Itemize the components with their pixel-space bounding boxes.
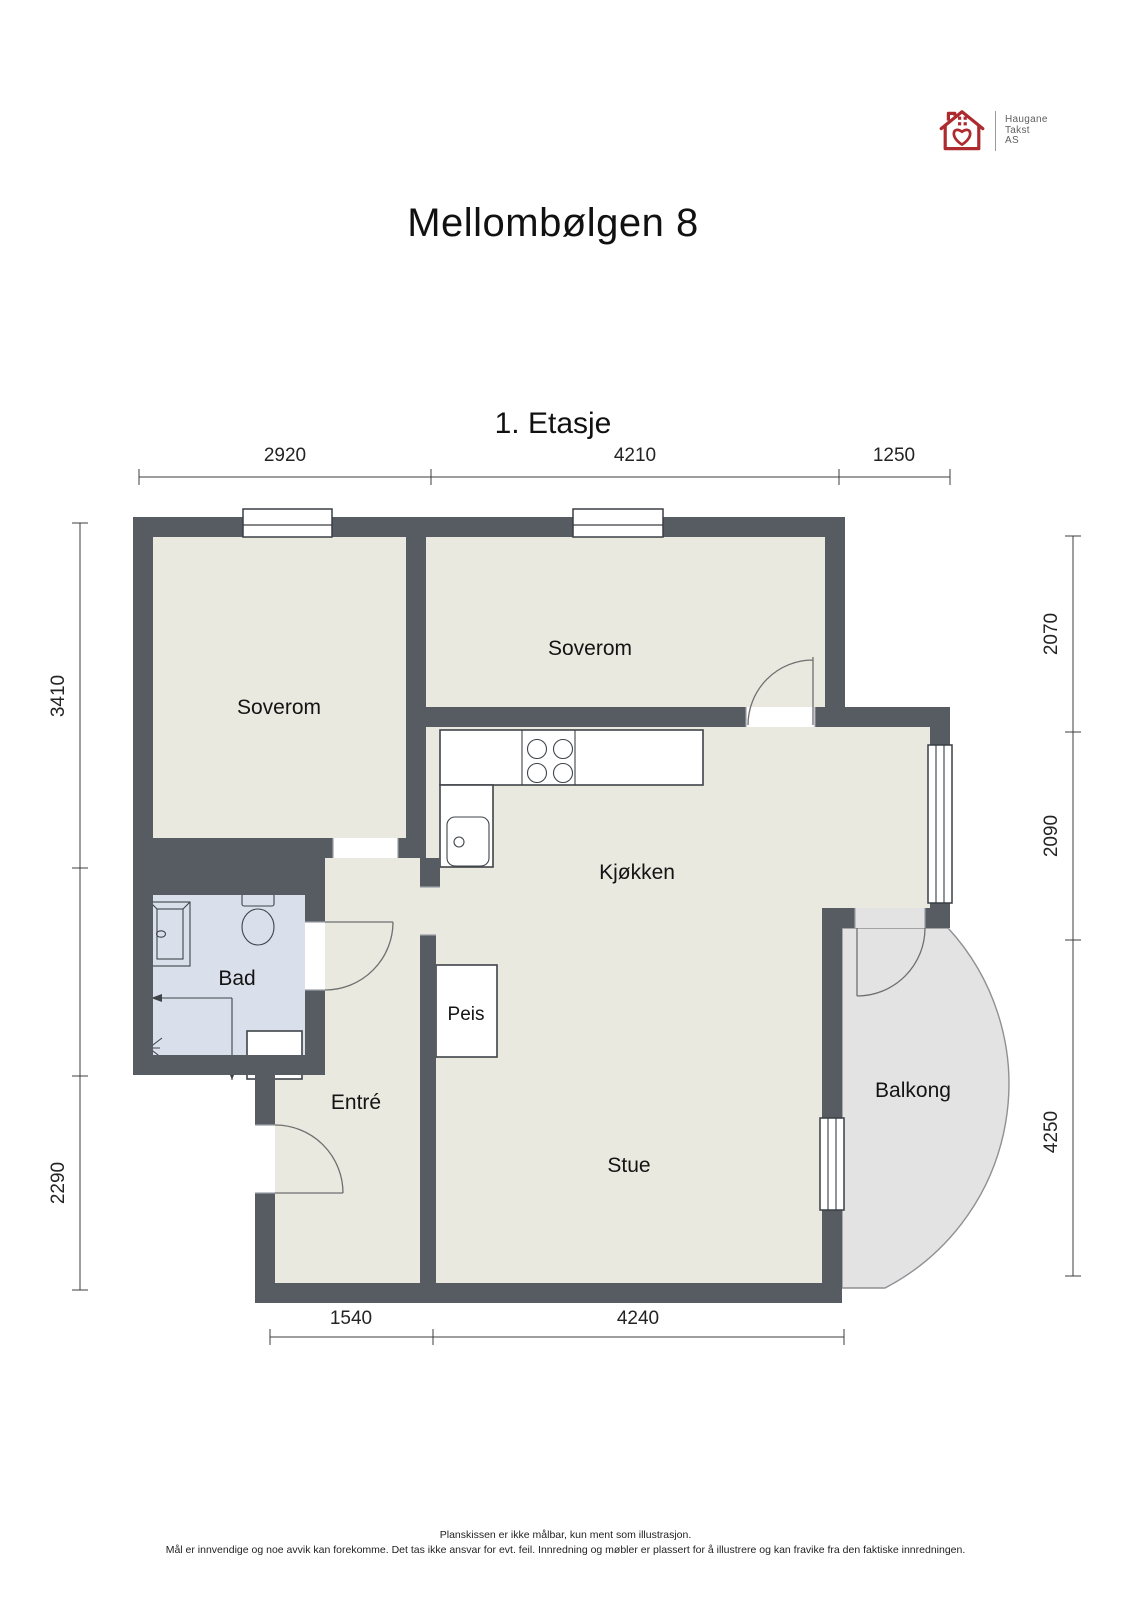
dim-bottom: 1540 4240 (270, 1308, 844, 1345)
dim-top-1: 2920 (264, 445, 306, 466)
window-soverom-top (573, 509, 663, 537)
floorplan-page: Haugane Takst AS Mellombølgen 8 1. Etasj… (0, 0, 1131, 1600)
dim-bottom-2: 4240 (617, 1308, 659, 1329)
dim-top-2: 4210 (614, 445, 656, 466)
disclaimer-line-2: Mål er innvendige og noe avvik kan forek… (0, 1543, 1131, 1558)
dim-right-2: 2090 (1041, 815, 1062, 857)
wall-extension-right-a (930, 707, 950, 745)
wall-bath-bottom (133, 1055, 325, 1075)
wall-hall-kitchen (420, 858, 440, 887)
disclaimer-footer: Planskissen er ikke målbar, kun ment som… (0, 1528, 1131, 1558)
floor-plan-drawing: Soverom Soverom Kjøkken Bad Entré Peis S… (0, 0, 1131, 1600)
label-balkong: Balkong (875, 1079, 951, 1102)
wall-kitchen-top-a (426, 707, 746, 727)
wall-stue-right-a (822, 908, 842, 1118)
label-stue: Stue (607, 1154, 650, 1177)
wall-top (133, 517, 845, 537)
wall-bed1-bottom-b (398, 838, 426, 858)
label-entre: Entré (331, 1091, 381, 1114)
window-kitchen-east (928, 745, 952, 903)
wall-bedroom-divider (406, 517, 426, 858)
dim-right-3: 4250 (1041, 1111, 1062, 1153)
label-peis: Peis (448, 1004, 485, 1025)
wall-bath-right-a (305, 858, 325, 922)
wall-extension-bottom-b (925, 908, 950, 928)
dim-right-1: 2070 (1041, 613, 1062, 655)
label-soverom-left: Soverom (237, 696, 321, 719)
wall-stue-right-b (822, 1210, 842, 1303)
dim-top-3: 1250 (873, 445, 915, 466)
disclaimer-line-1: Planskissen er ikke målbar, kun ment som… (0, 1528, 1131, 1543)
dim-right: 2070 2090 4250 (1041, 536, 1081, 1276)
bath-door-jambs (305, 922, 325, 990)
dim-left: 3410 2290 (48, 523, 88, 1290)
dim-left-2: 2290 (48, 1162, 69, 1204)
wall-entre-left-a (255, 1075, 275, 1125)
balcony-threshold (855, 908, 925, 928)
wall-left (133, 517, 153, 1075)
wall-bed2-right (825, 517, 845, 727)
hall-kitchen-passage-floor (416, 887, 440, 935)
room-soverom-left-floor (153, 537, 406, 838)
wall-bottom (255, 1283, 842, 1303)
label-kjokken: Kjøkken (599, 861, 675, 884)
bed1-opening (333, 838, 398, 858)
label-bad: Bad (218, 967, 255, 990)
hall-floor (325, 858, 420, 1075)
dim-bottom-1: 1540 (330, 1308, 372, 1329)
window-soverom-left (243, 509, 332, 537)
dim-top: 2920 4210 1250 (139, 445, 950, 485)
wall-extension-bottom-a (822, 908, 855, 928)
window-stue-east (820, 1118, 844, 1210)
wall-entre-stue (420, 935, 436, 1283)
wall-bed1-bottom-a (133, 838, 333, 858)
front-door-jambs (255, 1125, 275, 1193)
wall-bath-right-b (305, 990, 325, 1055)
kitchen-counter-left (440, 785, 493, 867)
dim-left-1: 3410 (48, 675, 69, 717)
bed2-door-jambs (746, 707, 815, 727)
room-balkong-floor (842, 928, 1009, 1288)
wall-bath-top (133, 858, 325, 895)
label-soverom-top: Soverom (548, 637, 632, 660)
